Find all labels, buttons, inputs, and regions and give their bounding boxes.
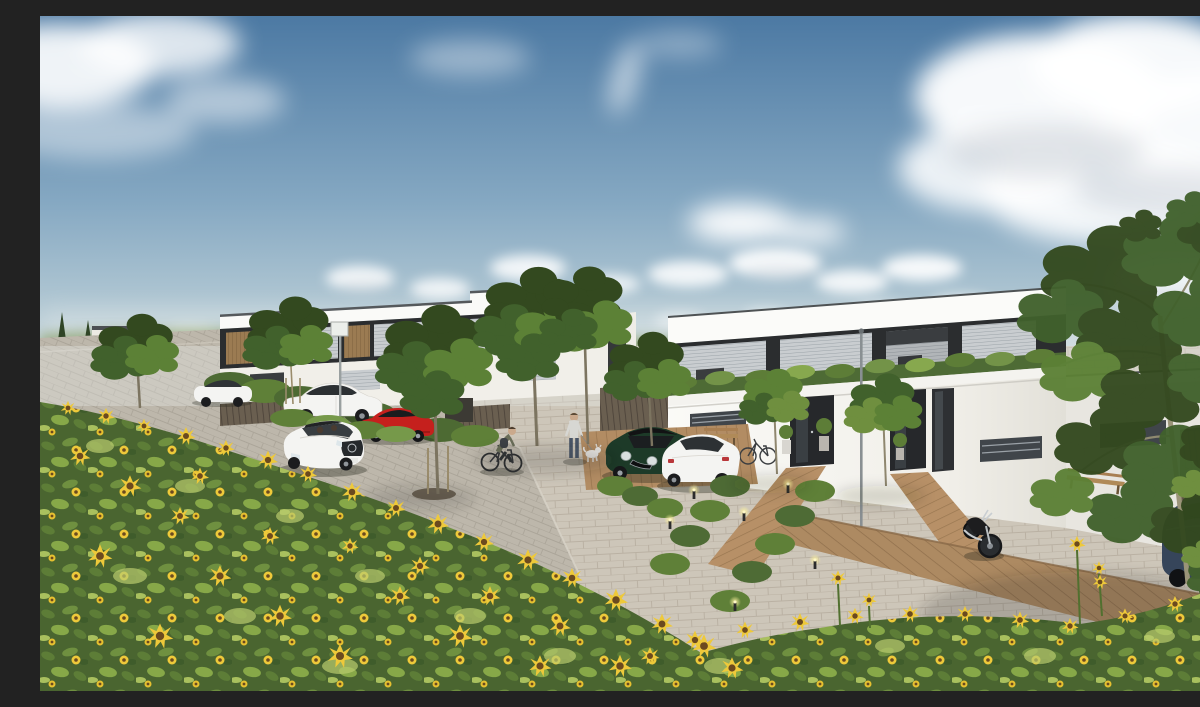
rendering-stage: Sunny 3D architectural rendering of a mo… [40,16,1200,691]
scene-svg [40,16,1200,691]
